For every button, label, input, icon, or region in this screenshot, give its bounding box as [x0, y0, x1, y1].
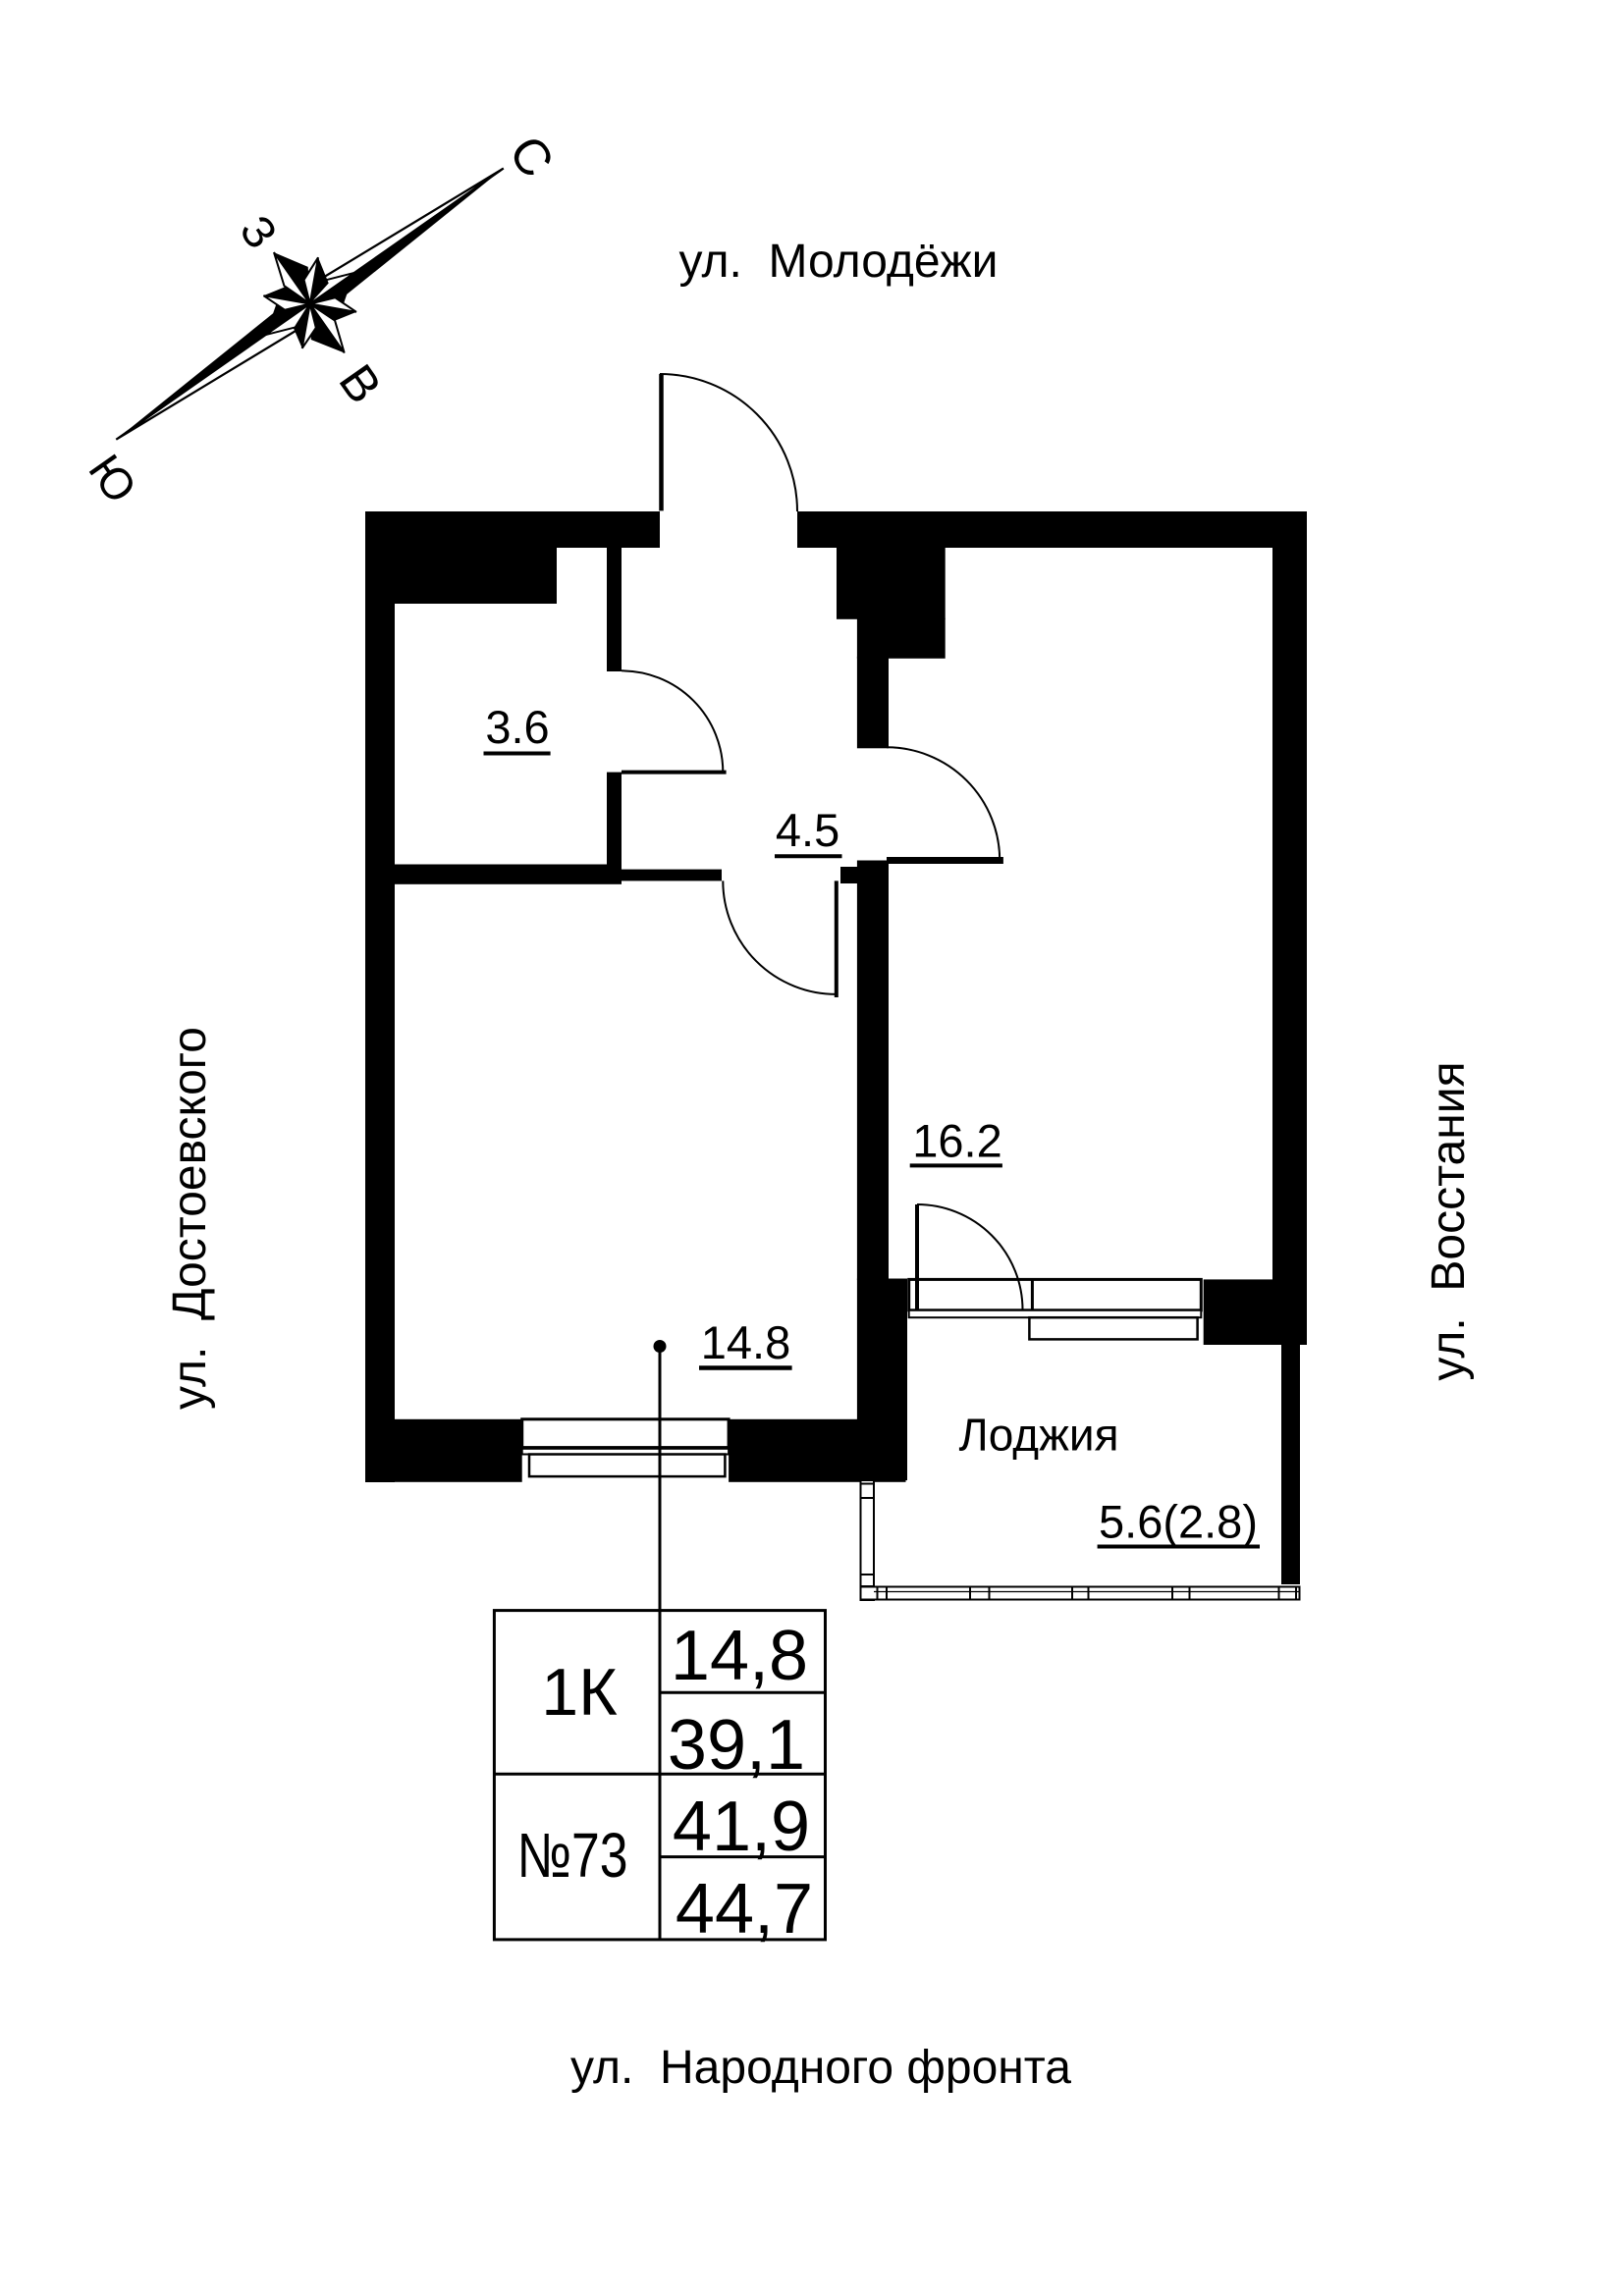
- svg-text:16.2: 16.2: [912, 1115, 1001, 1167]
- svg-text:№73: №73: [517, 1820, 628, 1891]
- svg-text:41,9: 41,9: [673, 1788, 810, 1866]
- svg-text:3.6: 3.6: [485, 701, 549, 753]
- svg-text:1К: 1К: [541, 1655, 618, 1730]
- svg-text:14,8: 14,8: [671, 1617, 808, 1695]
- svg-text:4.5: 4.5: [776, 804, 839, 856]
- svg-text:14.8: 14.8: [701, 1316, 790, 1368]
- svg-text:ул. Восстания: ул. Восстания: [1423, 1061, 1475, 1380]
- svg-text:44,7: 44,7: [676, 1870, 813, 1949]
- svg-text:ул. Молодёжи: ул. Молодёжи: [679, 236, 999, 288]
- svg-text:ул. Народного фронта: ул. Народного фронта: [570, 2042, 1071, 2094]
- svg-text:Лоджия: Лоджия: [959, 1410, 1119, 1461]
- svg-text:ул. Достоевского: ул. Достоевского: [164, 1027, 216, 1410]
- svg-text:39,1: 39,1: [668, 1706, 805, 1785]
- svg-text:5.6(2.8): 5.6(2.8): [1099, 1495, 1258, 1547]
